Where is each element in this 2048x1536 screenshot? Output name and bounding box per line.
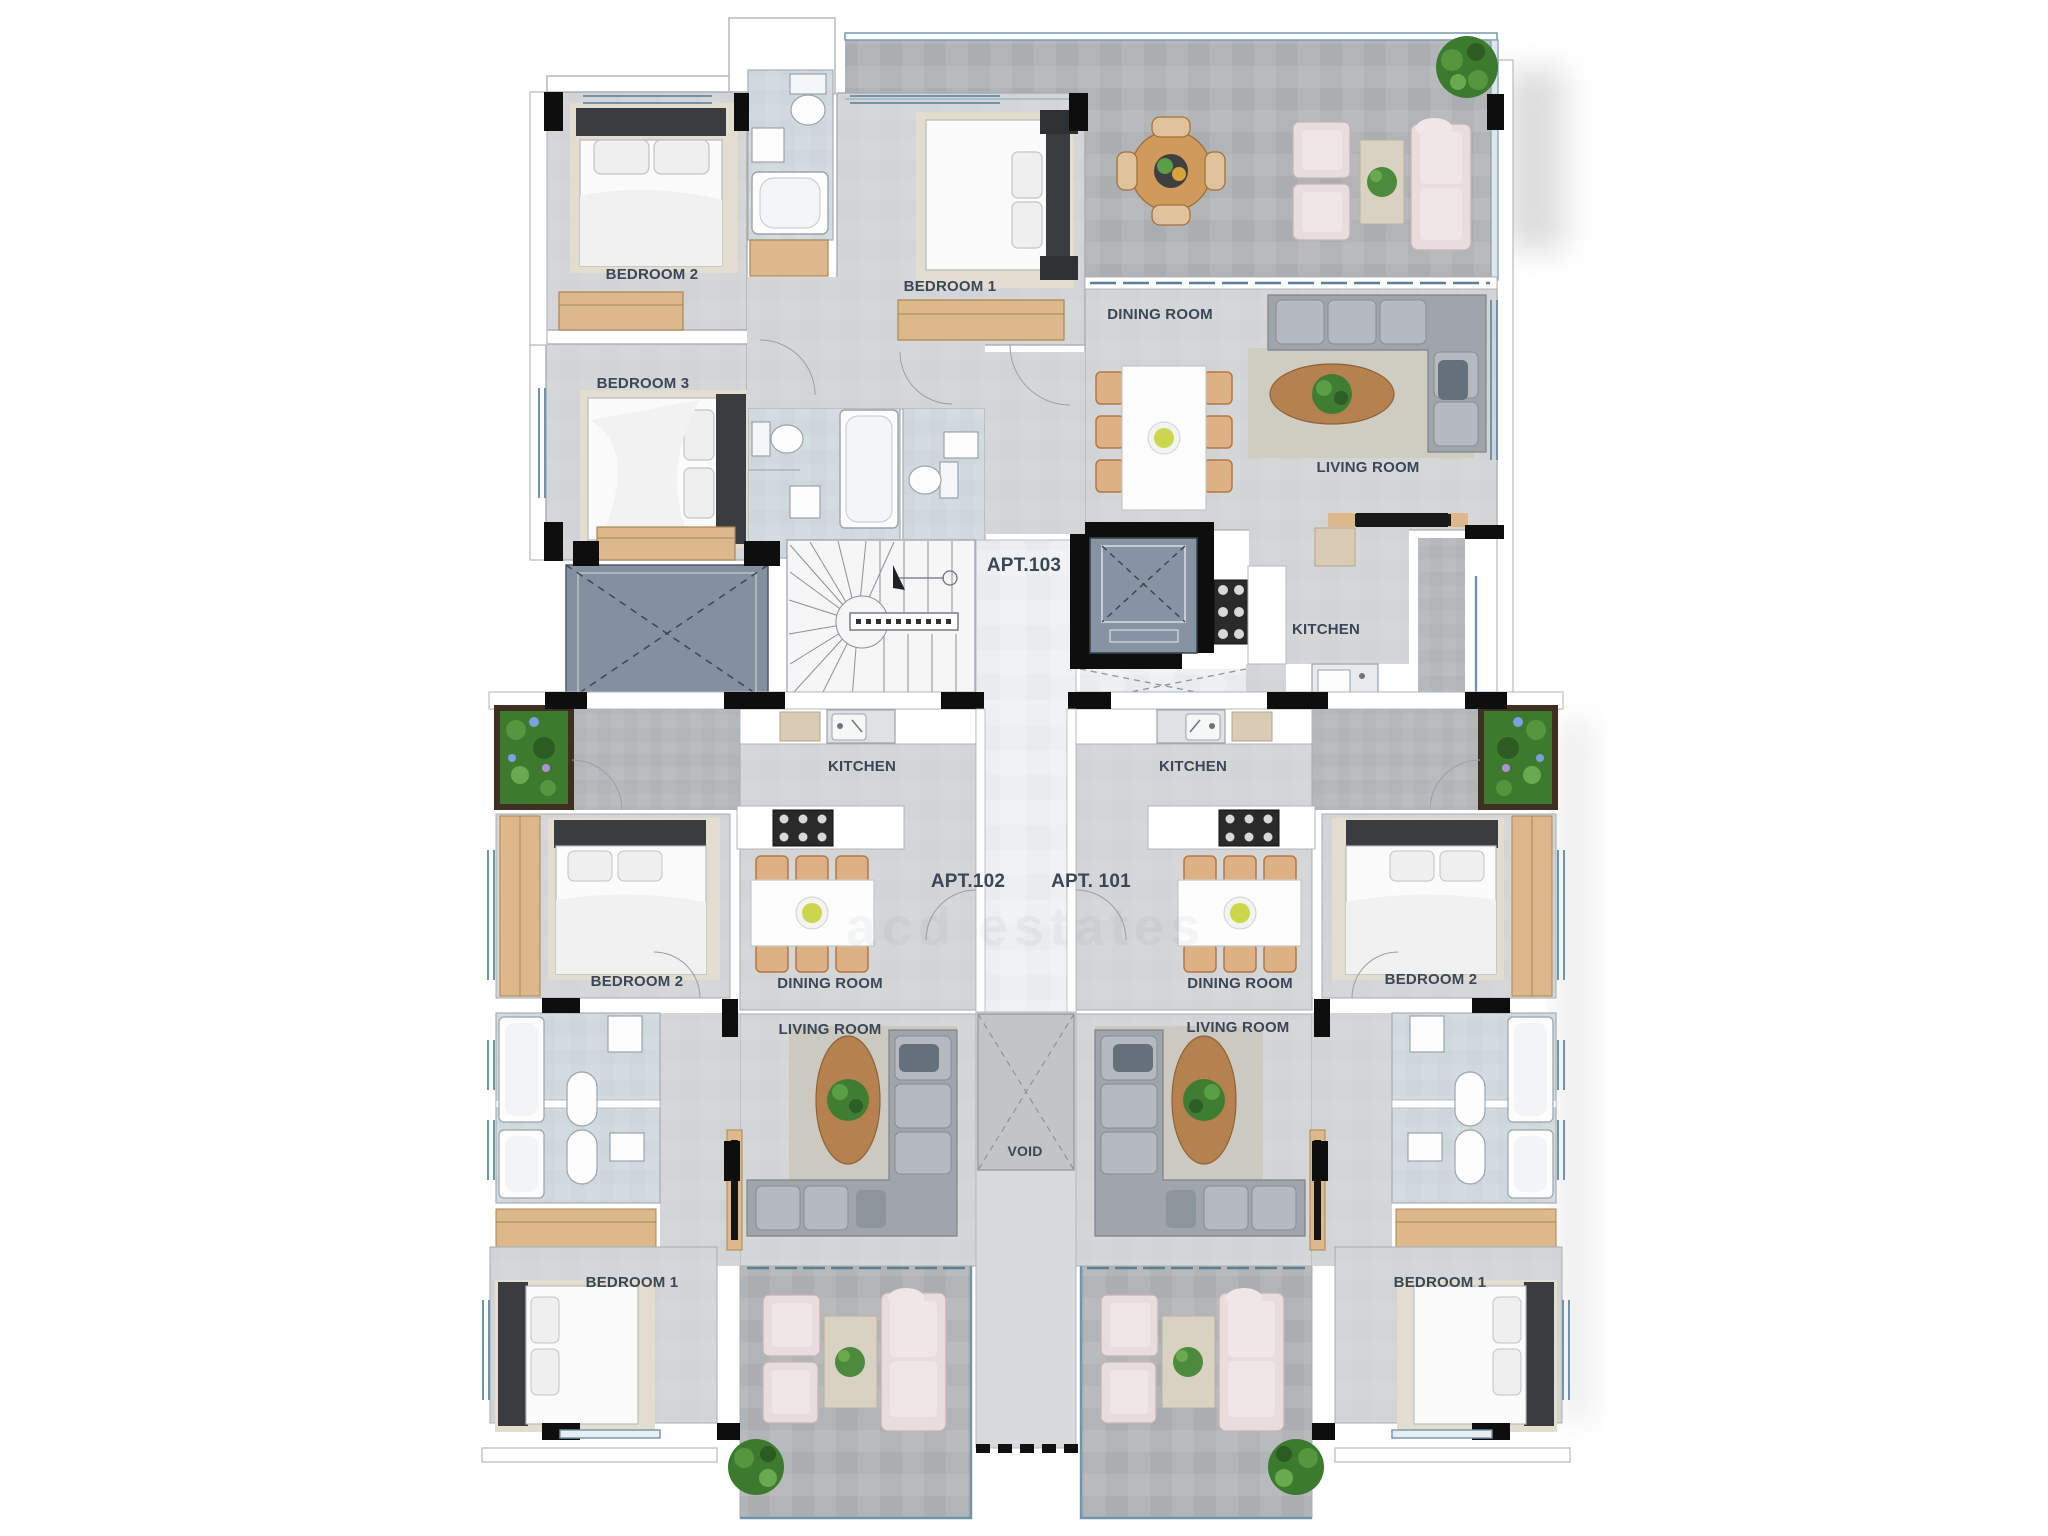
svg-text:BEDROOM 2: BEDROOM 2 (606, 266, 699, 283)
svg-text:DINING ROOM: DINING ROOM (1187, 975, 1293, 992)
svg-text:KITCHEN: KITCHEN (1292, 621, 1360, 638)
svg-text:KITCHEN: KITCHEN (828, 758, 896, 775)
svg-text:KITCHEN: KITCHEN (1159, 758, 1227, 775)
svg-text:BEDROOM 1: BEDROOM 1 (1394, 1274, 1487, 1291)
svg-text:APT.102: APT.102 (931, 871, 1005, 892)
svg-text:APT. 101: APT. 101 (1051, 871, 1131, 892)
svg-text:DINING ROOM: DINING ROOM (1107, 306, 1213, 323)
svg-text:BEDROOM 2: BEDROOM 2 (1385, 971, 1478, 988)
svg-text:BEDROOM 1: BEDROOM 1 (586, 1274, 679, 1291)
svg-text:LIVING ROOM: LIVING ROOM (1316, 459, 1419, 476)
svg-text:LIVING ROOM: LIVING ROOM (1186, 1019, 1289, 1036)
svg-text:BEDROOM 1: BEDROOM 1 (904, 278, 997, 295)
svg-text:acd estates: acd estates (846, 897, 1206, 957)
svg-text:APT.103: APT.103 (987, 555, 1061, 576)
svg-text:DINING ROOM: DINING ROOM (777, 975, 883, 992)
svg-text:LIVING ROOM: LIVING ROOM (778, 1021, 881, 1038)
svg-text:BEDROOM 2: BEDROOM 2 (591, 973, 684, 990)
svg-text:BEDROOM 3: BEDROOM 3 (597, 375, 690, 392)
svg-text:VOID: VOID (1007, 1143, 1042, 1159)
